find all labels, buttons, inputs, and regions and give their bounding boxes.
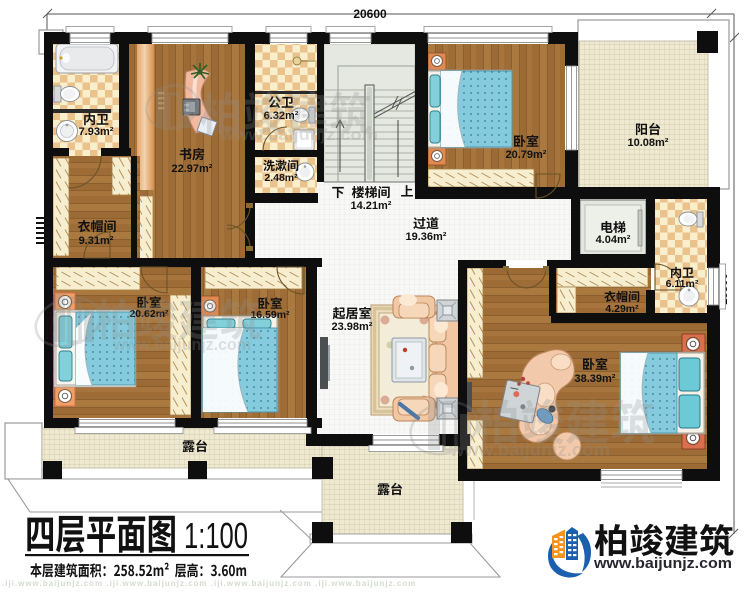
- svg-text:.iji.www.baijunjz.com .iji.www: .iji.www.baijunjz.com .iji.www.baijunjz.…: [2, 579, 416, 588]
- svg-text:www.baijunjz.com: www.baijunjz.com: [112, 335, 251, 354]
- svg-text:1:100: 1:100: [184, 515, 248, 556]
- svg-text:2.48m²: 2.48m²: [264, 172, 298, 184]
- svg-text:19.36m²: 19.36m²: [406, 231, 447, 243]
- svg-text:4.04m²: 4.04m²: [596, 234, 631, 246]
- svg-text:38.39m²: 38.39m²: [575, 373, 616, 385]
- svg-text:www.baijunjz.com: www.baijunjz.com: [593, 555, 732, 572]
- svg-text:20.79m²: 20.79m²: [506, 149, 547, 161]
- svg-text:16.59m²: 16.59m²: [250, 309, 290, 321]
- svg-text:www.baijunjz.com: www.baijunjz.com: [219, 127, 378, 144]
- svg-text:www.baijunjz.com: www.baijunjz.com: [449, 440, 610, 460]
- svg-text:20600: 20600: [353, 7, 387, 21]
- svg-text:6.11m²: 6.11m²: [666, 278, 699, 290]
- svg-text:10.08m²: 10.08m²: [628, 137, 669, 149]
- svg-text:23.98m²: 23.98m²: [332, 321, 373, 333]
- svg-text:14.21m²: 14.21m²: [351, 200, 392, 212]
- svg-text:9.31m²: 9.31m²: [79, 235, 114, 247]
- svg-text:4.29m²: 4.29m²: [605, 303, 639, 315]
- svg-text:7.93m²: 7.93m²: [79, 126, 114, 138]
- svg-text:22.97m²: 22.97m²: [172, 163, 213, 175]
